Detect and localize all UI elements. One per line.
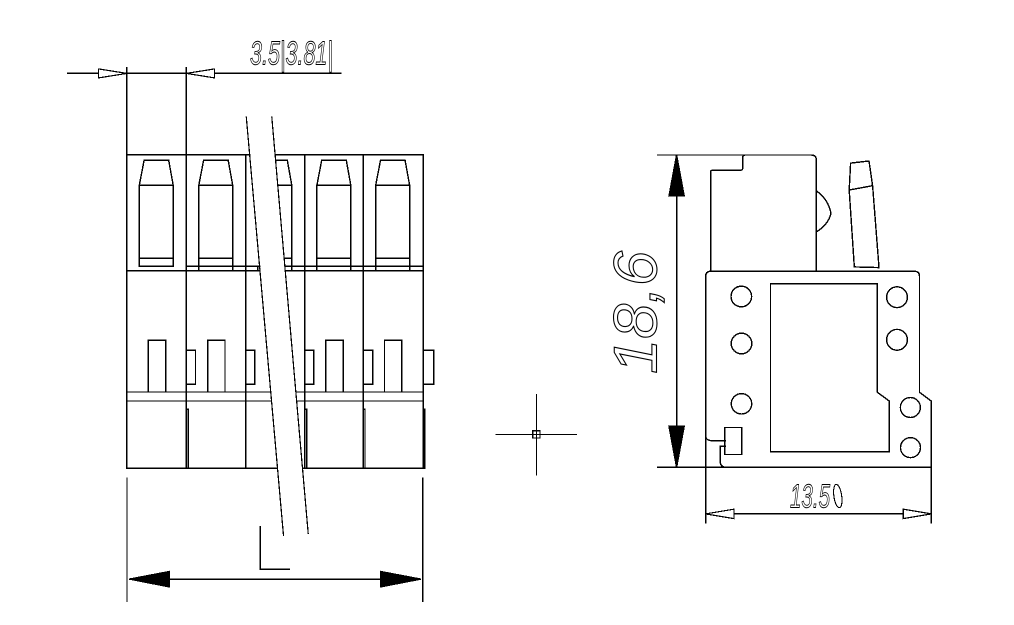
svg-text:18,6: 18,6	[602, 251, 670, 374]
svg-text:13.5: 13.5	[790, 478, 830, 515]
svg-text:3.5|3.81|: 3.5|3.81|	[250, 34, 333, 71]
